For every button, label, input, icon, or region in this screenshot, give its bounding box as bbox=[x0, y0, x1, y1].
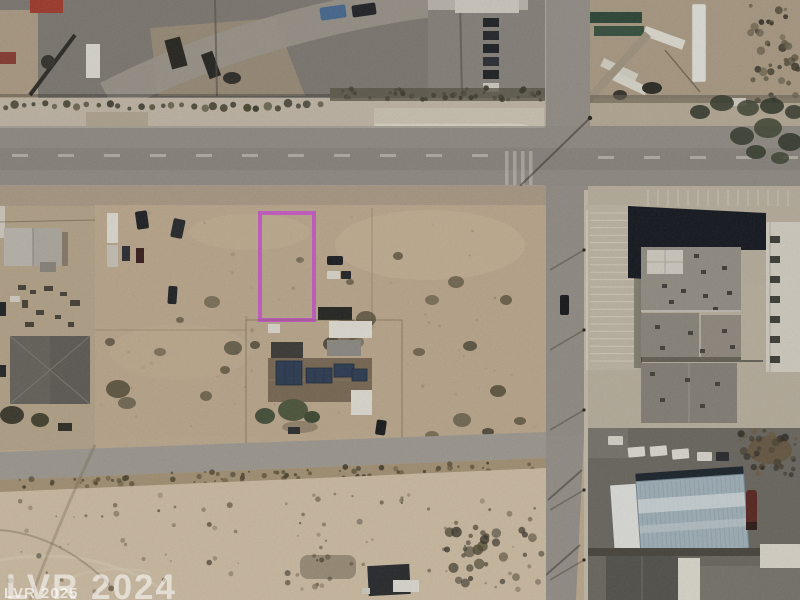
aerial-photo: LVR 2025 LVR 2024 bbox=[0, 0, 800, 600]
watermark-2024: LVR 2024 bbox=[6, 568, 177, 600]
photo-grain-light bbox=[0, 0, 800, 600]
